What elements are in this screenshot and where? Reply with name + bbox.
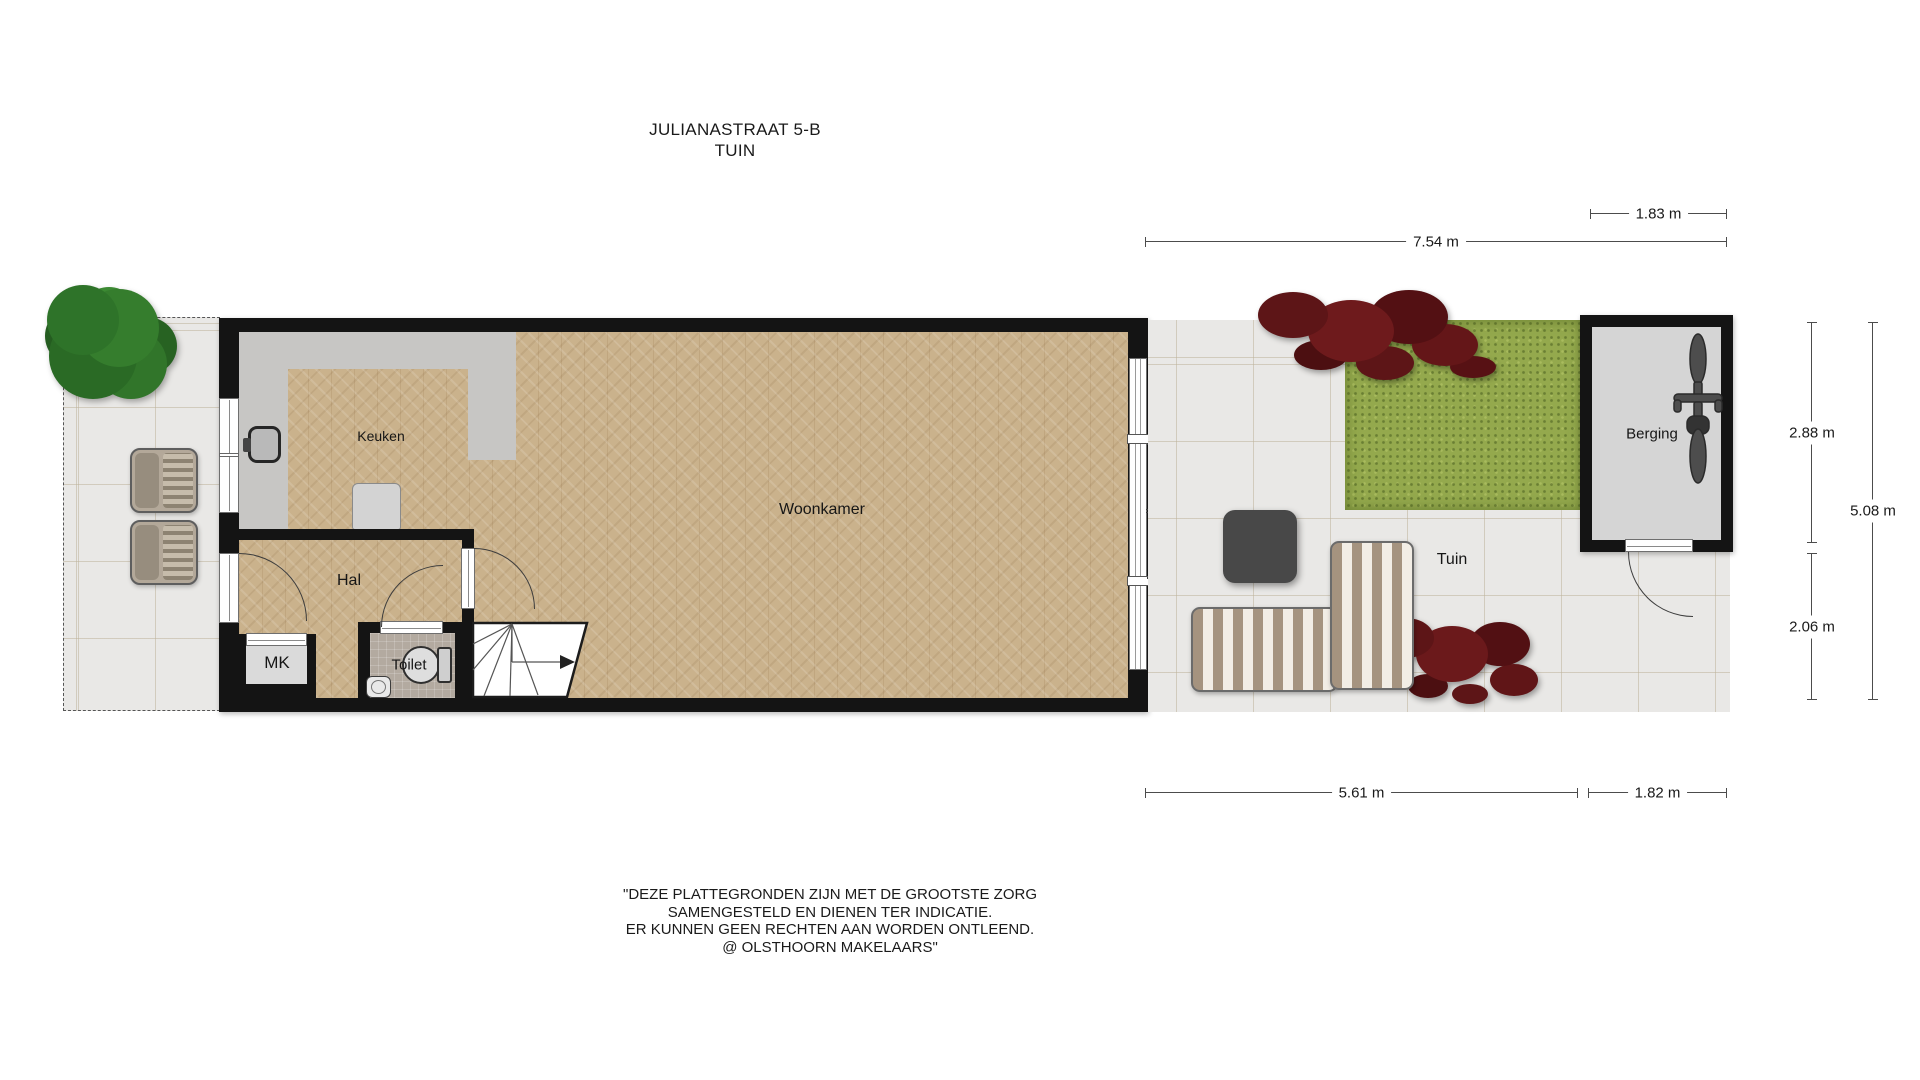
dimension-garden-width-bottom: 5.61 m [1145,792,1578,793]
disclaimer-line: "DEZE PLATTEGRONDEN ZIJN MET DE GROOTSTE… [600,886,1060,904]
dimension-berging-width-bottom: 1.82 m [1588,792,1727,793]
garden-facade-glass [1129,358,1147,670]
floor-plan-canvas: JULIANASTRAAT 5-B TUIN [0,0,1920,1080]
room-label-keuken: Keuken [357,428,404,444]
kitchen-sink-icon [248,426,281,463]
page-title: JULIANASTRAAT 5-B TUIN [540,119,930,161]
room-label-tuin: Tuin [1437,551,1468,569]
tree-icon [47,285,119,355]
grass-patch [1345,320,1582,510]
disclaimer-line: SAMENGESTELD EN DIENEN TER INDICATIE. [600,904,1060,922]
toilet-tank-icon [437,647,452,683]
stairs-icon [472,620,594,700]
kitchen-window-mullion [219,453,239,457]
disclaimer-line: @ OLSTHOORN MAKELAARS" [600,939,1060,957]
disclaimer: "DEZE PLATTEGRONDEN ZIJN MET DE GROOTSTE… [600,886,1060,956]
hall-kitchen-wall [239,529,474,540]
kitchen-counter-side [468,332,516,460]
title-address: JULIANASTRAAT 5-B [540,119,930,140]
berging-door-opening [1625,539,1693,552]
disclaimer-line: ER KUNNEN GEEN RECHTEN AAN WORDEN ONTLEE… [600,921,1060,939]
title-floor: TUIN [540,140,930,161]
hand-basin-icon [366,676,391,698]
mk-door-opening [246,633,307,646]
armchair-icon [130,520,198,585]
dimension-berging-width-top: 1.83 m [1590,213,1727,214]
room-label-berging: Berging [1626,426,1678,443]
room-label-woonkamer: Woonkamer [779,501,865,519]
dimension-berging-height: 2.88 m [1811,322,1812,543]
red-shrub-icon [1258,292,1328,338]
room-label-toilet: Toilet [391,657,426,674]
front-door-opening [219,553,239,623]
room-label-hal: Hal [337,572,361,590]
room-label-mk: MK [264,653,290,673]
patio-table [1223,510,1297,583]
bicycle-icon [1672,330,1724,488]
garden-sofa [1191,607,1338,692]
glass-mullion [1127,434,1149,444]
dimension-garden-lower-height: 2.06 m [1811,553,1812,700]
lounge-chair [1330,541,1414,690]
kitchen-appliance-icon [352,483,401,530]
dimension-garden-total-height: 5.08 m [1872,322,1873,700]
dimension-garden-total-width: 7.54 m [1145,241,1727,242]
front-yard [63,317,220,711]
armchair-icon [130,448,198,513]
hall-livingroom-door-opening [461,548,475,609]
